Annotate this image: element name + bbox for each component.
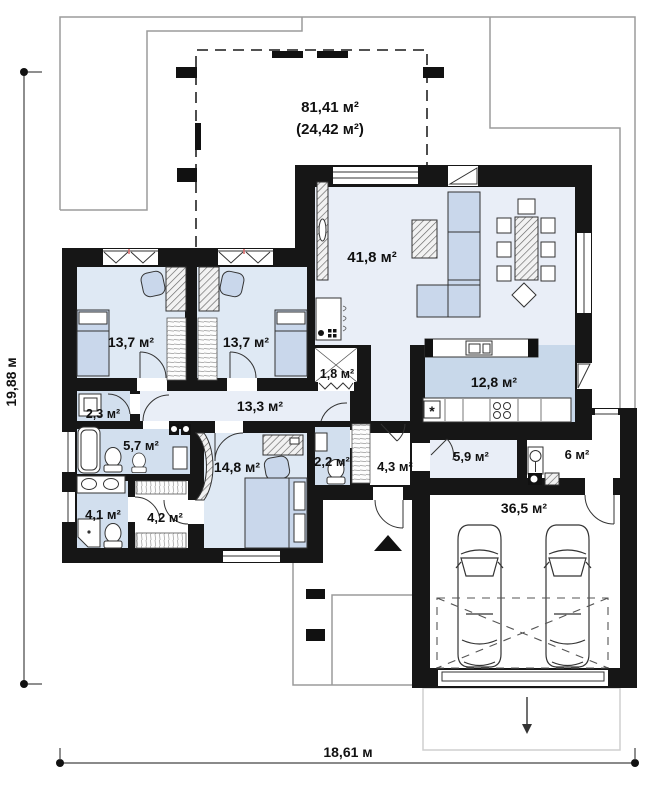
dishwasher-symbol: * bbox=[429, 403, 435, 419]
window-bedroom-right bbox=[218, 249, 273, 265]
room-label-kitchen: 12,8 м² bbox=[471, 374, 517, 390]
door-front bbox=[373, 487, 403, 528]
wardrobe-shelves bbox=[136, 481, 186, 494]
kitchen-counter: * bbox=[423, 398, 571, 422]
garage-gate bbox=[438, 670, 608, 686]
window-shower-west bbox=[62, 492, 75, 522]
wardrobe-shelves bbox=[352, 424, 370, 483]
desk bbox=[199, 267, 219, 311]
room-label-utility: 6 м² bbox=[565, 447, 590, 462]
dimension-left-label: 19,88 м bbox=[3, 357, 19, 406]
bathtub bbox=[78, 427, 100, 473]
room-label-hallway: 13,3 м² bbox=[237, 398, 283, 414]
floor-plan-page: * bbox=[0, 0, 655, 790]
room-label-bedroom-master: 14,8 м² bbox=[214, 459, 260, 475]
dining-chair bbox=[497, 266, 511, 281]
dining-chair bbox=[518, 199, 535, 214]
room-label-bedroom-right: 13,7 м² bbox=[223, 334, 269, 350]
toilet-icon bbox=[104, 524, 122, 549]
terrace-area-label: 81,41 м² bbox=[301, 99, 359, 116]
window-living-east bbox=[577, 233, 591, 313]
window-bathroom-west bbox=[62, 432, 75, 472]
desk bbox=[166, 267, 186, 311]
window-kitchen-east bbox=[577, 363, 592, 389]
terrace-pillar bbox=[317, 51, 348, 58]
dimension-left: 19,88 м bbox=[3, 68, 42, 688]
room-label-garage: 36,5 м² bbox=[501, 500, 547, 516]
office-chair bbox=[263, 455, 290, 481]
dimension-bottom: 18,61 м bbox=[56, 744, 639, 767]
dimension-bottom-label: 18,61 м bbox=[323, 744, 372, 760]
car-icon bbox=[544, 525, 591, 667]
dining-chair bbox=[497, 242, 511, 257]
driveway bbox=[423, 688, 620, 750]
bed bbox=[77, 310, 109, 376]
room-label-mudroom: 5,9 м² bbox=[453, 449, 489, 464]
toilet-icon bbox=[104, 448, 122, 473]
wardrobe-shelves bbox=[136, 533, 186, 548]
room-label-wc-small: 2,3 м² bbox=[86, 407, 120, 421]
room-label-entry: 4,3 м² bbox=[377, 459, 413, 474]
bed bbox=[275, 310, 307, 376]
porch-step bbox=[306, 629, 325, 641]
cabinet bbox=[173, 447, 187, 469]
dining-chair bbox=[541, 266, 555, 281]
room-label-pantry: 1,8 м² bbox=[320, 367, 354, 381]
washbasin bbox=[315, 433, 327, 451]
room-label-wardrobe: 4,2 м² bbox=[147, 510, 183, 525]
wardrobe-shelves bbox=[167, 318, 186, 380]
room-label-shower: 4,1 м² bbox=[85, 507, 121, 522]
kitchen-island bbox=[425, 339, 538, 357]
driveway-arrowhead-icon bbox=[522, 724, 532, 734]
window-living-top bbox=[333, 167, 418, 184]
porch-step bbox=[306, 589, 325, 599]
room-label-wc-second: 2,2 м² bbox=[314, 454, 350, 469]
room-label-bathroom: 5,7 м² bbox=[123, 438, 159, 453]
dining-chair bbox=[541, 218, 555, 233]
dining-chair bbox=[497, 218, 511, 233]
double-vanity bbox=[77, 476, 125, 493]
terrace-pillar bbox=[176, 67, 197, 78]
window-bedroom-master-south bbox=[223, 551, 280, 562]
car-icon bbox=[456, 525, 503, 667]
passage-floor bbox=[371, 337, 410, 421]
dining-table bbox=[515, 217, 538, 280]
window-utility-north bbox=[595, 409, 618, 419]
terrace-area-secondary-label: (24,42 м²) bbox=[296, 121, 364, 138]
room-label-bedroom-left: 13,7 м² bbox=[108, 334, 154, 350]
pantry-accordion-door bbox=[318, 382, 354, 391]
terrace-pillar bbox=[177, 168, 197, 182]
room-label-living: 41,8 м² bbox=[347, 249, 396, 266]
wardrobe-shelves bbox=[198, 318, 217, 380]
dining-chair bbox=[541, 242, 555, 257]
window-bedroom-left bbox=[103, 249, 158, 265]
entrance-arrow-icon bbox=[374, 535, 402, 551]
water-heater-icon bbox=[528, 447, 543, 474]
terrace-pillar bbox=[272, 51, 303, 58]
bidet-icon bbox=[132, 453, 146, 473]
porch-outline bbox=[293, 563, 412, 685]
terrace-door bbox=[448, 166, 478, 186]
coffee-table bbox=[412, 220, 437, 258]
terrace-pillar bbox=[423, 67, 444, 78]
terrace-pillar bbox=[195, 123, 201, 150]
